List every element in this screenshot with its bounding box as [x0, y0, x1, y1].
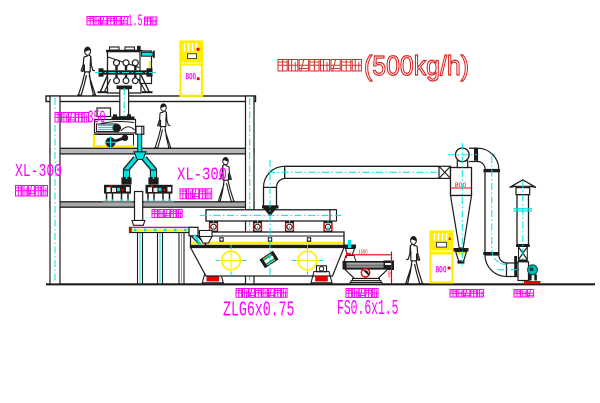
- svg-text:(500kg/h): (500kg/h): [364, 50, 469, 81]
- svg-text:350: 350: [88, 109, 106, 129]
- svg-text:XL-300: XL-300: [15, 161, 62, 182]
- svg-text:1.5: 1.5: [128, 13, 143, 32]
- svg-text:XL-300: XL-300: [177, 166, 227, 186]
- svg-text:800: 800: [186, 72, 197, 82]
- svg-text:ZLG6x0.75: ZLG6x0.75: [223, 300, 295, 323]
- svg-text:FS0.6x1.5: FS0.6x1.5: [337, 298, 399, 321]
- svg-text:1500: 1500: [359, 250, 368, 256]
- svg-text:550: 550: [388, 270, 394, 277]
- svg-text:800: 800: [436, 265, 447, 275]
